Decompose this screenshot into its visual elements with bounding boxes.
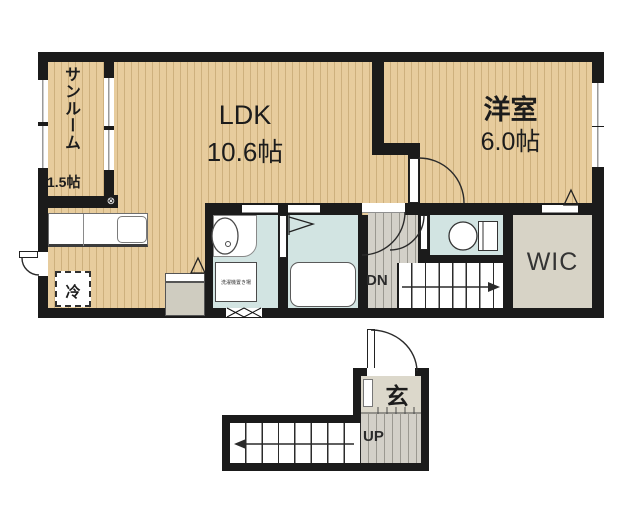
- kitchen-counter-divider: [83, 214, 84, 246]
- door-bathroom-top: [288, 205, 320, 213]
- entrance-door-opening: [367, 368, 415, 376]
- opening-sunroom-ldk-2: [104, 130, 114, 170]
- kitchen-door-arc: [22, 258, 39, 275]
- kitchen-sink: [117, 216, 147, 243]
- ldk-size: 10.6帖: [160, 132, 330, 169]
- kitchen-door-leaf: [19, 251, 38, 258]
- wall-bath-east: [358, 215, 368, 308]
- washing-machine-label: 洗濯機置き場: [216, 279, 256, 286]
- western-room-door-leaf: [409, 158, 419, 203]
- sunroom-size: 1.5帖: [47, 172, 80, 192]
- genkan-wall-east: [421, 368, 429, 471]
- refrigerator-label: 冷: [57, 281, 89, 302]
- western-room-size: 6.0帖: [428, 122, 593, 158]
- washing-machine-space: 洗濯機置き場: [215, 262, 257, 302]
- bath-door-leaf: [279, 215, 287, 258]
- wall-wic-west: [503, 203, 513, 308]
- wall-ldk-western-upper: [372, 62, 384, 145]
- toilet-tank: [478, 221, 498, 251]
- sunroom-name: サンルーム: [58, 66, 82, 186]
- wall-toilet-south: [418, 255, 503, 263]
- wic-label: WIC: [513, 248, 592, 277]
- window-sunroom-west-1: [38, 80, 48, 122]
- wall-north: [38, 52, 604, 62]
- opening-kitchen-door: [38, 252, 48, 276]
- genkan-label: 玄: [376, 377, 418, 411]
- ldk-name: LDK: [160, 100, 330, 131]
- bathtub: [290, 262, 356, 307]
- stairs-down-label: DN: [366, 272, 388, 289]
- stairs-up-wall-north: [222, 415, 361, 423]
- wall-ldk-western-stub: [372, 143, 420, 155]
- cabinet-top: [165, 273, 205, 282]
- opening-wic: [542, 205, 578, 213]
- stairs-up-wall-south: [222, 463, 429, 471]
- stairs-down: [397, 263, 505, 308]
- stairs-up-label: UP: [363, 428, 384, 445]
- wall-washroom-north: [205, 203, 362, 215]
- shoe-cabinet: [363, 379, 373, 407]
- vanity-counter: [213, 215, 257, 257]
- alarm-symbol: ⊗: [104, 195, 118, 208]
- window-western-east-1: [592, 83, 604, 126]
- wall-washroom-west: [205, 215, 213, 308]
- stairs-up: [230, 423, 361, 463]
- doorway-ldk-hall: [362, 203, 405, 213]
- toilet-door-leaf: [420, 215, 428, 250]
- window-western-east-2: [592, 127, 604, 167]
- floor-plan: 冷 洗濯機置き場 ⊗ サンルーム 1.5帖 LDK 10.6帖 洋室 6.0帖 …: [0, 0, 640, 512]
- wall-south: [38, 308, 604, 318]
- window-sunroom-west-2: [38, 126, 48, 168]
- door-washroom: [242, 205, 278, 213]
- cabinet: [165, 282, 205, 316]
- opening-sunroom-ldk-1: [104, 78, 114, 126]
- stairs-up-wall-west: [222, 415, 230, 471]
- entrance-door-arc: [371, 330, 417, 371]
- entrance-door-leaf: [367, 329, 375, 372]
- refrigerator: 冷: [55, 271, 91, 307]
